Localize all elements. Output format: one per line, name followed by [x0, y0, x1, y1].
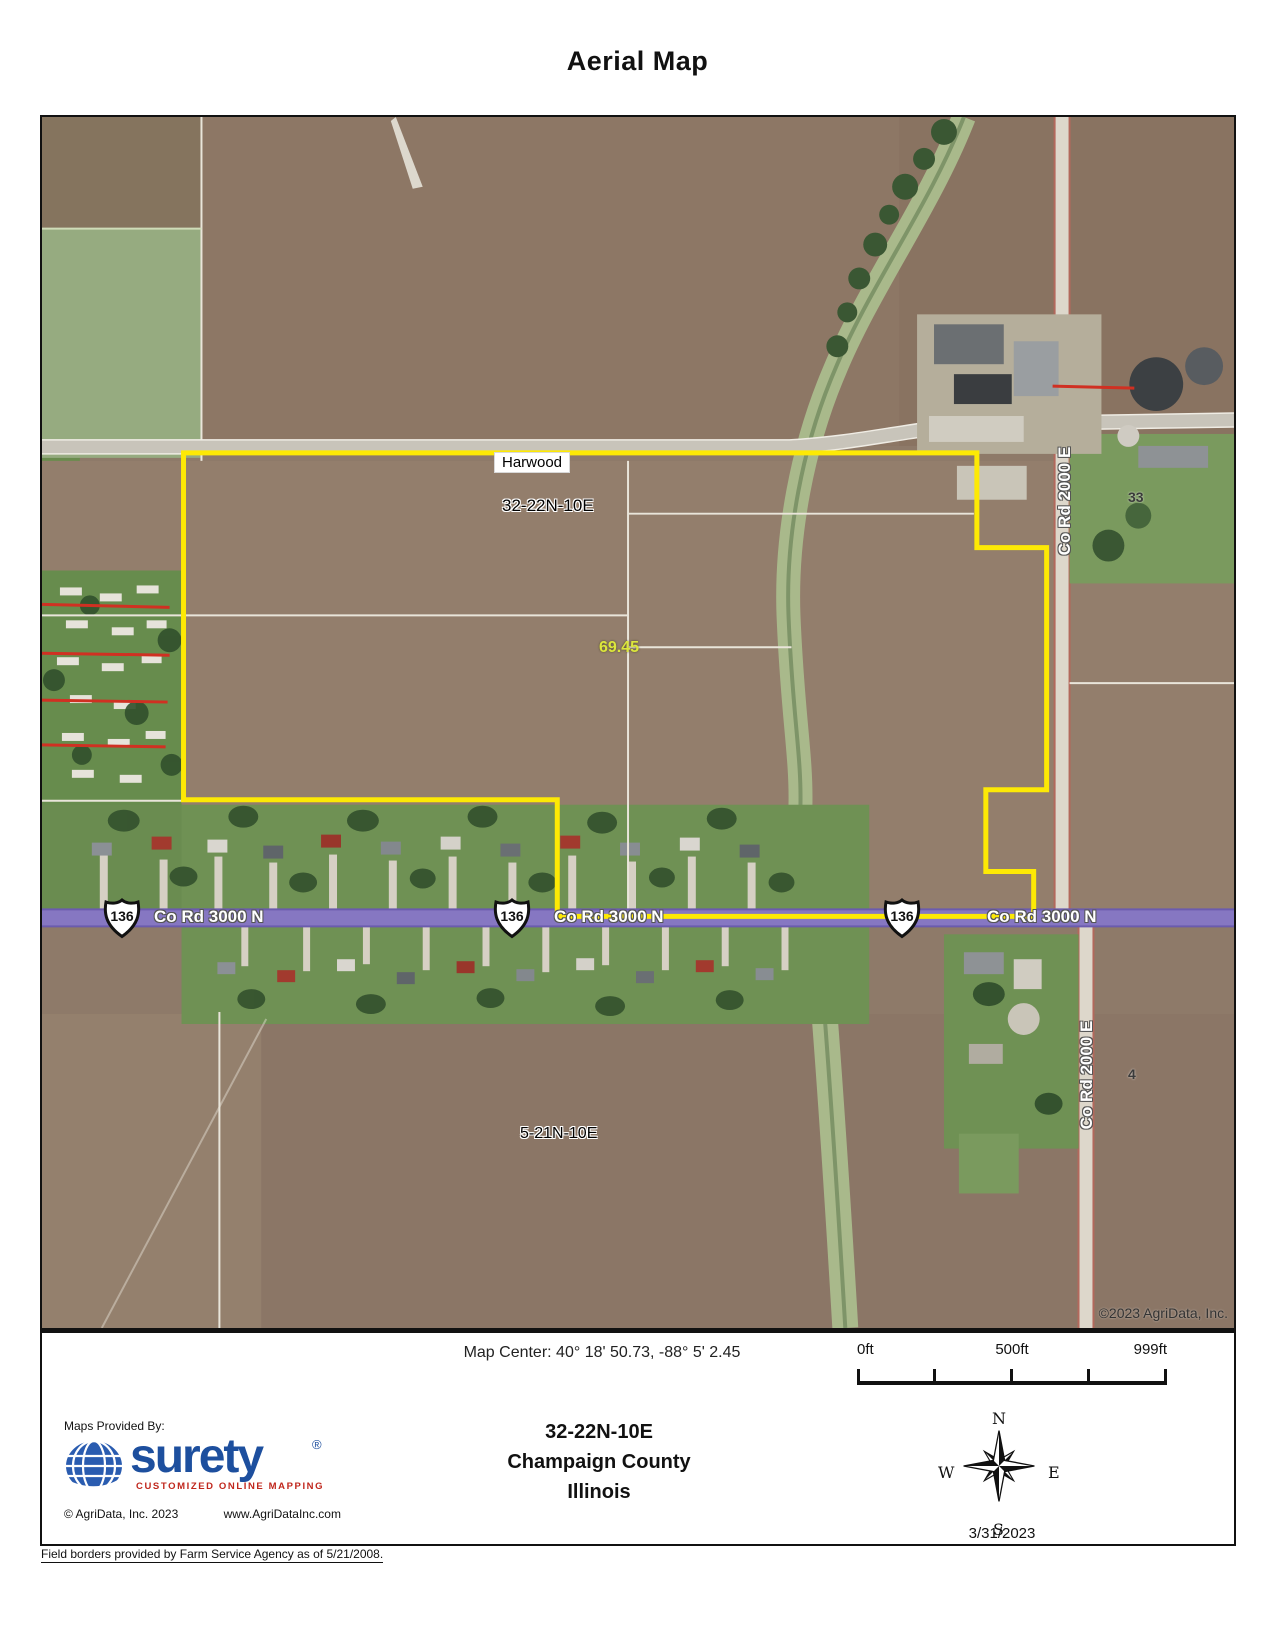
us-136-shield: 136	[102, 897, 142, 939]
footer-section: 32-22N-10E	[399, 1417, 799, 1447]
scale-end: 999ft	[1134, 1341, 1167, 1358]
section-number-33: 33	[1128, 489, 1144, 505]
road-label-2000e: Co Rd 2000 E	[1077, 995, 1097, 1155]
scale-bar: 0ft 500ft 999ft	[857, 1341, 1167, 1385]
provider-block: Maps Provided By: surety ® CUSTOMIZED ON…	[64, 1419, 394, 1521]
town-label: Harwood	[494, 452, 570, 473]
agridata-copyright: © AgriData, Inc. 2023	[64, 1507, 178, 1521]
road-label-3000n: Co Rd 3000 N	[987, 907, 1097, 927]
us-136-shield: 136	[492, 897, 532, 939]
compass-north: N	[992, 1409, 1006, 1428]
field-borders-note: Field borders provided by Farm Service A…	[41, 1547, 383, 1563]
location-identity: 32-22N-10E Champaign County Illinois	[399, 1417, 799, 1507]
agridata-url: www.AgriDataInc.com	[224, 1507, 341, 1521]
scale-mid: 500ft	[857, 1341, 1167, 1358]
map-copyright: ©2023 AgriData, Inc.	[1099, 1305, 1228, 1321]
section-number-4: 4	[1128, 1066, 1136, 1082]
footer-state: Illinois	[399, 1477, 799, 1507]
registered-mark: ®	[312, 1437, 322, 1452]
aerial-map: Harwood 32-22N-10E 69.45 5-21N-10E 33 4 …	[40, 115, 1236, 1330]
road-label-3000n: Co Rd 3000 N	[154, 907, 264, 927]
page-title: Aerial Map	[0, 46, 1275, 77]
us-136-shield: 136	[882, 897, 922, 939]
scale-bar-ruler	[857, 1373, 1167, 1385]
section-label-south: 5-21N-10E	[520, 1125, 597, 1143]
map-footer: Map Center: 40° 18' 50.73, -88° 5' 2.45 …	[40, 1330, 1236, 1546]
footer-county: Champaign County	[399, 1447, 799, 1477]
surety-logo: surety ® CUSTOMIZED ONLINE MAPPING	[64, 1437, 394, 1499]
globe-icon	[64, 1439, 124, 1493]
section-label-main: 32-22N-10E	[502, 496, 594, 516]
compass-west: W	[938, 1463, 954, 1482]
map-date: 3/31/2023	[922, 1525, 1082, 1542]
aerial-imagery	[42, 117, 1234, 1328]
compass-rose-icon	[961, 1428, 1037, 1504]
road-label-3000n: Co Rd 3000 N	[554, 907, 664, 927]
surety-wordmark: surety	[130, 1429, 262, 1484]
road-label-2000e: Co Rd 2000 E	[1055, 421, 1075, 581]
acreage-label: 69.45	[599, 639, 639, 657]
aerial-map-page: Aerial Map	[0, 0, 1275, 1650]
surety-tagline: CUSTOMIZED ONLINE MAPPING	[136, 1481, 324, 1492]
compass-east: E	[1048, 1463, 1060, 1482]
